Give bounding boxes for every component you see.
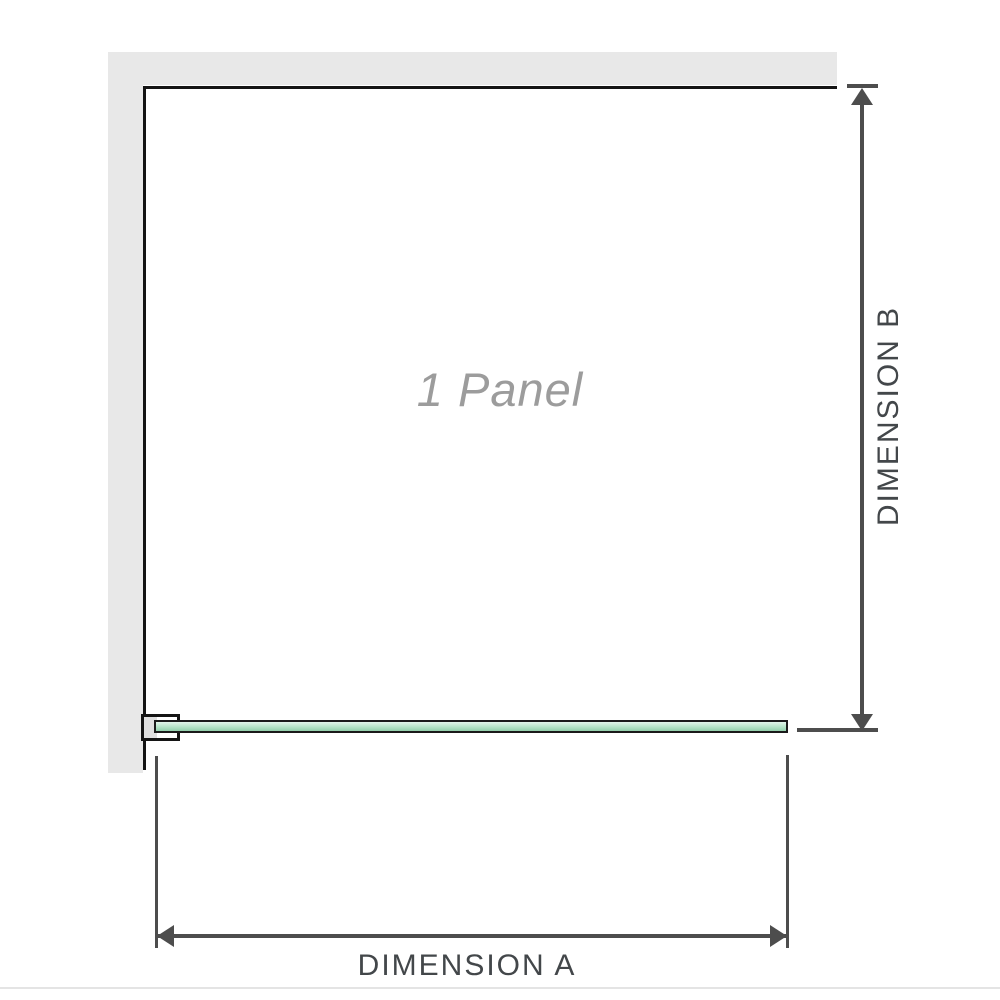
shower-panel-dimension-diagram: 1 Panel DIMENSION B DIMENSION A — [0, 0, 1000, 1000]
glass-panel-bar — [154, 720, 788, 733]
dimension-a-label: DIMENSION A — [358, 949, 577, 983]
arrow-left-icon — [157, 925, 174, 947]
dimension-b-label: DIMENSION B — [872, 306, 906, 526]
wall-left-band — [108, 52, 143, 773]
dimension-a-right-extension-line — [786, 755, 789, 948]
image-bottom-rule — [0, 987, 1000, 989]
panel-count-label: 1 Panel — [350, 362, 650, 417]
panel-outline-left — [143, 86, 146, 770]
wall-top-band — [108, 52, 837, 85]
arrow-down-icon — [851, 714, 873, 731]
dimension-a-arrow-line — [157, 934, 787, 938]
dimension-b-arrow-line — [860, 98, 864, 720]
arrow-right-icon — [770, 925, 787, 947]
arrow-up-icon — [851, 88, 873, 105]
panel-outline-top — [143, 86, 837, 89]
dimension-a-left-extension-line — [155, 756, 158, 948]
